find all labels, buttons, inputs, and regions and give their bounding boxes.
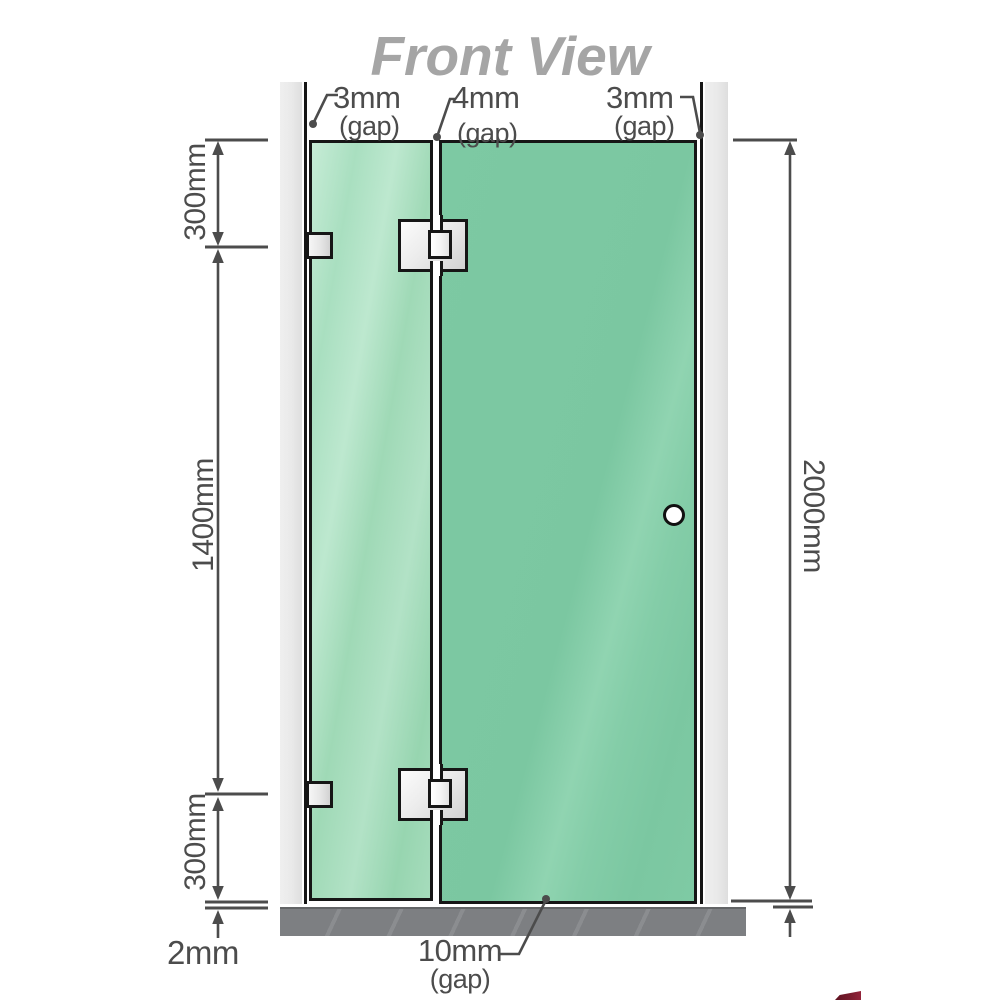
left-wall [280, 82, 302, 904]
dim-floor-2mm: 2mm [167, 934, 239, 972]
glass-gap-channel [430, 810, 443, 825]
door-glass-panel [439, 140, 697, 904]
dim-bottom-300mm: 300mm [179, 793, 213, 891]
gap-right-unit: (gap) [614, 113, 675, 140]
dim-middle-1400mm: 1400mm [187, 458, 221, 572]
glass-gap-channel [430, 261, 443, 276]
gap-middle-unit: (gap) [457, 120, 519, 147]
glass-gap-channel [430, 764, 443, 779]
floor [280, 907, 746, 936]
dim-top-300mm: 300mm [179, 143, 213, 241]
gap-middle-value: 4mm [452, 82, 519, 113]
gap-bottom-value: 10mm [415, 935, 505, 966]
hinge-knuckle [428, 230, 452, 259]
hinge-bottom [398, 768, 468, 821]
glass-gap-channel [430, 215, 443, 230]
hinge-top [398, 219, 468, 272]
door-handle [663, 504, 685, 526]
dim-total-2000mm: 2000mm [796, 459, 830, 573]
gap-left-unit: (gap) [339, 113, 400, 140]
right-wall-edge-line [700, 82, 703, 904]
gap-label-left: 3mm (gap) [333, 82, 400, 140]
gap-right-value: 3mm [606, 82, 675, 113]
watermark-logo-fragment [835, 991, 861, 1000]
gap-bottom-unit: (gap) [415, 966, 505, 993]
gap-label-bottom: 10mm (gap) [415, 935, 505, 993]
shower-screen-front-view-diagram: Front View [0, 0, 1000, 1000]
wall-bracket-bottom [306, 781, 333, 808]
hinge-knuckle [428, 779, 452, 808]
gap-left-value: 3mm [333, 82, 400, 113]
diagram-title: Front View [310, 24, 710, 88]
gap-label-middle: 4mm (gap) [452, 82, 519, 147]
wall-bracket-top [306, 232, 333, 259]
gap-label-right: 3mm (gap) [606, 82, 675, 140]
right-wall [705, 82, 728, 904]
